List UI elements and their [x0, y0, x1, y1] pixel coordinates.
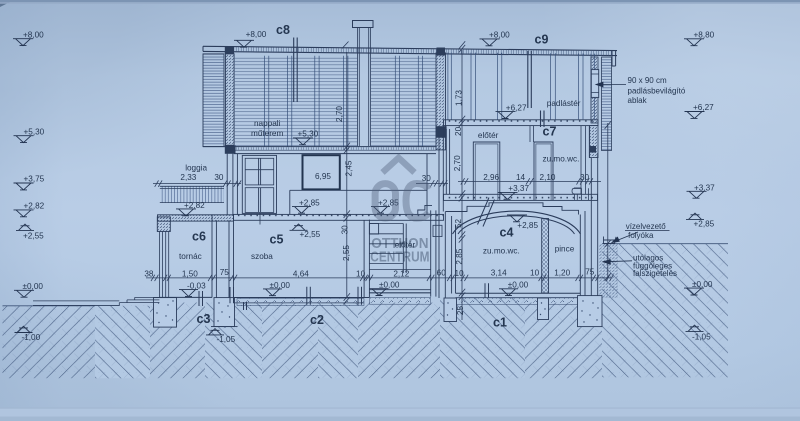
svg-text:zu.mo.wc.: zu.mo.wc. [483, 246, 520, 255]
svg-text:-0,03: -0,03 [187, 281, 206, 290]
svg-text:2,96: 2,96 [483, 173, 499, 182]
svg-text:+5,30: +5,30 [24, 127, 45, 136]
svg-text:±0,00: ±0,00 [379, 280, 400, 289]
svg-text:műterem: műterem [251, 129, 283, 138]
svg-text:c1: c1 [493, 316, 507, 330]
svg-text:30: 30 [580, 173, 590, 182]
svg-text:+3,75: +3,75 [24, 175, 45, 184]
svg-text:nappali: nappali [254, 119, 281, 128]
svg-text:25: 25 [456, 306, 465, 316]
svg-text:+2,85: +2,85 [694, 219, 715, 228]
svg-text:2,33: 2,33 [180, 173, 196, 182]
svg-text:60: 60 [437, 269, 447, 278]
svg-text:38: 38 [144, 270, 154, 279]
svg-text:+5,30: +5,30 [298, 130, 319, 139]
svg-text:+2,55: +2,55 [300, 230, 321, 239]
svg-text:2,70: 2,70 [335, 106, 344, 122]
svg-text:1,73: 1,73 [455, 90, 464, 106]
svg-text:52: 52 [454, 219, 463, 229]
svg-text:+2,85: +2,85 [299, 199, 320, 208]
svg-text:c7: c7 [543, 125, 557, 139]
svg-text:75: 75 [220, 268, 230, 277]
svg-text:c9: c9 [535, 32, 549, 46]
svg-text:1,50: 1,50 [182, 270, 198, 279]
svg-text:-1,00: -1,00 [22, 333, 41, 342]
svg-text:c8: c8 [276, 23, 290, 37]
svg-text:2,10: 2,10 [540, 173, 556, 182]
svg-text:+6,27: +6,27 [693, 103, 714, 112]
svg-text:c4: c4 [500, 226, 514, 240]
svg-text:75: 75 [585, 268, 595, 277]
svg-text:+2,82: +2,82 [184, 201, 205, 210]
svg-text:+8,80: +8,80 [694, 30, 715, 39]
svg-text:4,64: 4,64 [293, 270, 309, 279]
svg-text:+2,82: +2,82 [24, 201, 45, 210]
svg-text:3,14: 3,14 [491, 269, 507, 278]
svg-text:vízelvezető: vízelvezető [626, 222, 667, 231]
svg-text:-1,05: -1,05 [217, 335, 236, 344]
svg-text:c3: c3 [197, 312, 211, 326]
svg-text:+2,55: +2,55 [23, 231, 44, 240]
svg-text:1,20: 1,20 [554, 269, 570, 278]
svg-text:2,85: 2,85 [455, 248, 464, 264]
svg-text:pince: pince [555, 244, 575, 253]
svg-text:±0,00: ±0,00 [692, 280, 713, 289]
svg-text:30: 30 [341, 225, 350, 235]
svg-text:+3,37: +3,37 [508, 184, 529, 193]
svg-text:folyóka: folyóka [628, 231, 654, 240]
svg-text:padlásbevilágító: padlásbevilágító [628, 87, 686, 96]
svg-text:+8,00: +8,00 [23, 30, 44, 39]
svg-text:30: 30 [214, 173, 224, 182]
svg-text:szoba: szoba [251, 252, 273, 261]
svg-text:6,95: 6,95 [315, 172, 331, 181]
svg-text:-1,05: -1,05 [692, 333, 711, 342]
svg-text:14: 14 [516, 173, 526, 182]
svg-text:c6: c6 [192, 230, 206, 244]
svg-text:2,12: 2,12 [393, 269, 409, 278]
svg-text:ablak: ablak [628, 96, 648, 105]
svg-text:tornác: tornác [179, 252, 202, 261]
svg-text:padlástér: padlástér [547, 99, 581, 108]
svg-text:2,70: 2,70 [453, 155, 462, 171]
svg-text:10: 10 [455, 269, 465, 278]
svg-text:±0,00: ±0,00 [508, 281, 529, 290]
svg-text:20: 20 [454, 126, 463, 136]
svg-text:CENTRUM: CENTRUM [370, 250, 429, 266]
svg-text:+8,00: +8,00 [246, 30, 267, 39]
svg-text:loggia: loggia [185, 164, 207, 173]
svg-text:c5: c5 [270, 233, 284, 247]
svg-text:10: 10 [356, 269, 366, 278]
svg-text:10: 10 [530, 269, 540, 278]
svg-text:zu.mo.wc.: zu.mo.wc. [543, 155, 580, 164]
svg-text:±0,00: ±0,00 [270, 281, 291, 290]
svg-text:±0,00: ±0,00 [23, 282, 44, 291]
svg-text:2,45: 2,45 [344, 160, 353, 176]
svg-text:falszigetelés: falszigetelés [633, 269, 677, 278]
svg-text:2,55: 2,55 [342, 245, 351, 261]
svg-text:előtér: előtér [478, 131, 499, 140]
svg-text:+8,00: +8,00 [489, 31, 510, 40]
svg-text:90 x 90 cm: 90 x 90 cm [628, 76, 667, 85]
svg-text:c2: c2 [310, 313, 324, 327]
svg-text:+3,37: +3,37 [694, 183, 715, 192]
svg-text:+6,27: +6,27 [506, 104, 527, 113]
svg-text:+2,85: +2,85 [517, 221, 538, 230]
